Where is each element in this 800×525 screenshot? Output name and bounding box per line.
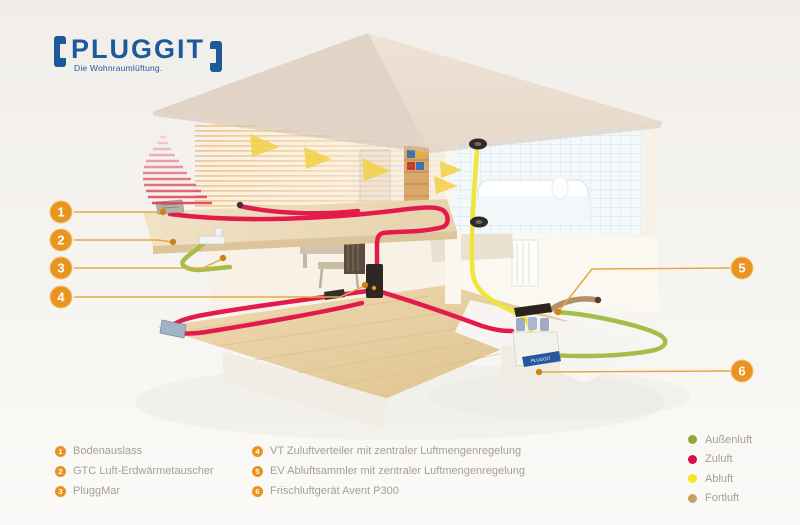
air-legend-label: Zuluft [705,453,733,465]
legend-bullet-5: 5 [252,466,263,477]
logo-tagline: Die Wohnraumlüftung. [71,63,205,73]
callout-circle-1: 1 [50,201,72,223]
legend-bullet-4: 4 [252,446,263,457]
color-dot-abluft [688,474,697,483]
legend-bullet-1: 1 [55,446,66,457]
outgoing-air-cap [595,297,601,303]
legend-item-5: 5 EV Abluftsammler mit zentraler Luftmen… [252,461,525,481]
color-dot-fortluft [688,494,697,503]
bathtub [478,177,588,222]
callout-circle-6: 6 [731,360,753,382]
svg-text:6: 6 [738,364,745,379]
legend-item-1: 1 Bodenauslass [55,441,214,461]
logo-bracket-right-icon [210,41,222,72]
svg-text:2: 2 [57,233,64,248]
right-edge-wall [642,120,656,236]
air-legend-item-zuluft: Zuluft [688,450,752,470]
legend-column-1: 1 Bodenauslass 2 GTC Luft-Erdwärmetausch… [55,441,214,501]
air-legend-item-aussenluft: Außenluft [688,430,752,450]
air-legend-label: Fortluft [705,492,739,504]
legend-label-4: VT Zuluftverteiler mit zentraler Luftmen… [270,445,521,457]
air-legend-item-abluft: Abluft [688,469,752,489]
svg-text:3: 3 [57,261,64,276]
legend-label-3: PluggMar [73,485,120,497]
legend-label-1: Bodenauslass [73,445,142,457]
legend-bullet-2: 2 [55,466,66,477]
callout-circle-5: 5 [731,257,753,279]
legend-item-4: 4 VT Zuluftverteiler mit zentraler Luftm… [252,441,525,461]
air-legend-label: Abluft [705,473,733,485]
legend-item-3: 3 PluggMar [55,481,214,501]
svg-text:1: 1 [57,205,64,220]
callout-circle-3: 3 [50,257,72,279]
svg-text:4: 4 [57,290,65,305]
pluggit-logo: PLUGGIT Die Wohnraumlüftung. [54,36,222,73]
svg-text:5: 5 [738,261,745,276]
legend-bullet-3: 3 [55,486,66,497]
legend-label-6: Frischluftgerät Avent P300 [270,485,399,497]
color-dot-aussenluft [688,435,697,444]
legend-label-5: EV Abluftsammler mit zentraler Luftmenge… [270,465,525,477]
pluggit-ventilation-infographic: PLUGGIT [0,0,800,525]
air-legend-item-fortluft: Fortluft [688,489,752,509]
legend-label-2: GTC Luft-Erdwärmetauscher [73,465,214,477]
vt-distributor [366,264,383,298]
callout-line-3 [74,259,222,268]
legend-bullet-6: 6 [252,486,263,497]
legend-item-2: 2 GTC Luft-Erdwärmetauscher [55,461,214,481]
legend-column-2: 4 VT Zuluftverteiler mit zentraler Luftm… [252,441,525,501]
unit-connectors [516,317,549,331]
radiator-white [512,240,538,286]
logo-name: PLUGGIT [71,36,205,63]
air-color-legend: Außenluft Zuluft Abluft Fortluft [688,430,752,508]
ventilation-unit: PLUGGIT [513,332,561,367]
legend-item-6: 6 Frischluftgerät Avent P300 [252,481,525,501]
logo-text-block: PLUGGIT Die Wohnraumlüftung. [71,36,205,73]
color-dot-zuluft [688,455,697,464]
callout-circle-2: 2 [50,229,72,251]
callout-circle-4: 4 [50,286,72,308]
logo-bracket-left-icon [54,36,66,67]
air-legend-label: Außenluft [705,434,752,446]
callout-line-6 [540,371,730,372]
